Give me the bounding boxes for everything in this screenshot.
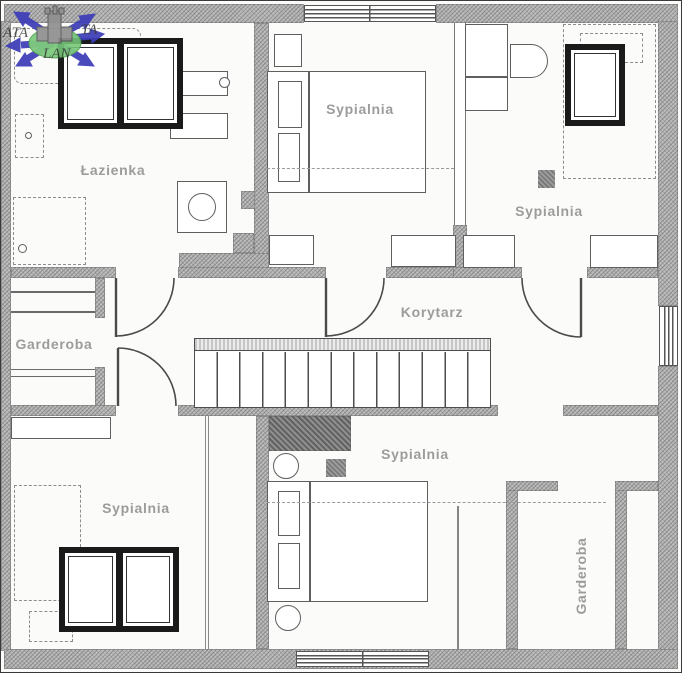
room-label-corridor: Korytarz bbox=[401, 304, 463, 320]
bed-top-bedroom bbox=[267, 71, 426, 193]
bed-bottom-bedroom bbox=[267, 481, 428, 602]
wall-mid-seg5 bbox=[587, 267, 658, 278]
roof-window-mullion bbox=[117, 44, 124, 123]
chimney-block bbox=[269, 416, 351, 451]
stair-handrail bbox=[195, 339, 490, 351]
roof-window-pane bbox=[123, 553, 174, 626]
chair bbox=[510, 44, 548, 78]
roof-window-pane bbox=[124, 44, 177, 123]
room-label-bedroom-top-right: Sypialnia bbox=[515, 203, 583, 219]
room-label-bedroom-bottom-center: Sypialnia bbox=[381, 446, 449, 462]
roof-window-pane bbox=[65, 553, 116, 626]
bathroom-pier bbox=[241, 191, 255, 209]
dresser bbox=[463, 235, 515, 268]
closet-cap-1 bbox=[506, 481, 558, 491]
stair-treads bbox=[195, 352, 490, 408]
roof-window-mullion bbox=[116, 553, 123, 626]
pillow bbox=[278, 543, 300, 589]
shower bbox=[13, 197, 86, 265]
bed-headboard-line bbox=[309, 482, 311, 601]
door-arc-bedroom-top-center bbox=[326, 278, 384, 336]
clothes-rail bbox=[11, 291, 95, 293]
bathroom-corner-block bbox=[179, 253, 269, 268]
room-label-wardrobe-bottom-right: Garderoba bbox=[573, 537, 589, 614]
dresser bbox=[269, 235, 314, 265]
watermark-text-left: ATA bbox=[2, 25, 29, 41]
bed-headboard-line bbox=[308, 72, 310, 192]
closet-cap-2 bbox=[615, 481, 658, 491]
wall-mid-seg2 bbox=[178, 267, 326, 278]
watermark-text-right: TA bbox=[81, 22, 98, 38]
dresser bbox=[391, 235, 456, 267]
room-label-bathroom: Łazienka bbox=[81, 162, 146, 178]
shelf bbox=[11, 417, 111, 439]
clothes-rail bbox=[11, 311, 95, 313]
window-top bbox=[304, 5, 436, 22]
wall-wardrobe-right-upper bbox=[95, 278, 105, 318]
pillow bbox=[278, 81, 302, 128]
door-arc-bathroom bbox=[116, 278, 174, 336]
roof-window-top-right bbox=[565, 44, 625, 126]
heater-block bbox=[538, 170, 555, 188]
door-arc-wardrobe bbox=[118, 348, 176, 406]
exterior-wall-top-right bbox=[436, 4, 678, 23]
ceiling-slope-line bbox=[267, 502, 606, 503]
cabinet-knob bbox=[25, 132, 32, 139]
stool bbox=[275, 605, 301, 631]
wall-mid2-seg3 bbox=[563, 405, 658, 416]
nightstand bbox=[274, 34, 302, 67]
wall-mid-seg1 bbox=[11, 267, 116, 278]
exterior-wall-right-lower bbox=[658, 366, 678, 651]
wall-wardrobe-right-lower bbox=[95, 367, 105, 407]
wardrobe-shelf-line bbox=[465, 76, 508, 78]
exterior-wall-left bbox=[1, 21, 11, 651]
pillow bbox=[278, 491, 300, 536]
window-right bbox=[659, 306, 678, 366]
bathroom-corner-block-2 bbox=[233, 233, 254, 253]
castle-icon bbox=[37, 6, 72, 43]
roof-window-pane bbox=[571, 50, 619, 120]
roof-window-bottom-left bbox=[59, 547, 179, 632]
room-label-bedroom-top-center: Sypialnia bbox=[326, 101, 394, 117]
exterior-wall-right-upper bbox=[658, 21, 678, 306]
wall-mid-seg4 bbox=[453, 267, 522, 278]
toilet-knob bbox=[219, 77, 230, 88]
closet-wall-1 bbox=[506, 481, 518, 649]
staircase bbox=[194, 338, 491, 408]
wardrobe-top-right bbox=[465, 24, 508, 111]
wall-mid-seg3 bbox=[386, 267, 456, 278]
ceiling-slope-line bbox=[267, 168, 454, 169]
wall-mid2-seg1 bbox=[11, 405, 116, 416]
knee-wall-line bbox=[205, 416, 209, 649]
washing-machine-drum bbox=[188, 193, 216, 221]
closet-wall-2 bbox=[615, 481, 627, 649]
room-label-wardrobe-left: Garderoba bbox=[15, 336, 92, 352]
stool bbox=[273, 453, 299, 479]
dresser bbox=[590, 235, 658, 268]
heater-block bbox=[326, 459, 346, 477]
door-arc-bedroom-top-right bbox=[522, 278, 581, 337]
pillow bbox=[278, 133, 300, 182]
watermark-logo: ATA TA LAN bbox=[1, 3, 113, 75]
watermark-text-bottom: LAN bbox=[42, 46, 72, 62]
floor-plan: Łazienka Sypialnia Sypialnia Garderoba K… bbox=[0, 0, 682, 673]
window-bottom bbox=[296, 651, 429, 667]
closet-edge-line bbox=[457, 506, 459, 649]
clothes-rail-double bbox=[11, 369, 95, 377]
room-label-bedroom-bottom-left: Sypialnia bbox=[102, 500, 170, 516]
shower-drain bbox=[18, 244, 27, 253]
